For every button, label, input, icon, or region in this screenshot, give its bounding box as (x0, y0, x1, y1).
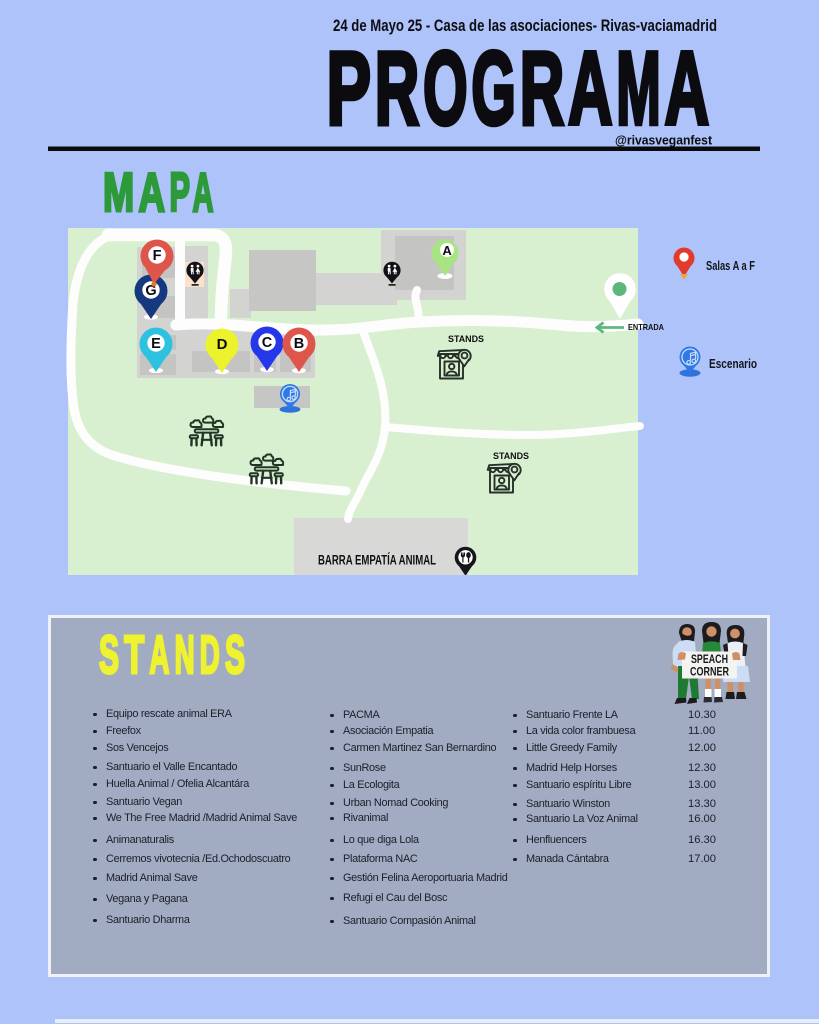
svg-text:A: A (568, 31, 613, 147)
svg-text:O: O (423, 31, 468, 147)
svg-text:D: D (217, 336, 228, 353)
svg-text:S: S (225, 628, 245, 683)
svg-text:C: C (262, 335, 273, 351)
svg-text:A: A (193, 161, 214, 223)
svg-text:BARRA EMPATÍA ANIMAL: BARRA EMPATÍA ANIMAL (318, 553, 436, 568)
svg-text:T: T (124, 628, 144, 683)
svg-text:P: P (170, 161, 191, 223)
svg-text:F: F (153, 248, 162, 264)
svg-text:S: S (99, 628, 119, 683)
svg-text:STANDS: STANDS (448, 334, 484, 345)
svg-text:A: A (665, 31, 710, 147)
svg-text:STANDS: STANDS (493, 451, 529, 462)
svg-text:Escenario: Escenario (709, 356, 757, 371)
svg-text:M: M (103, 161, 134, 223)
svg-text:R: R (520, 31, 565, 147)
svg-text:CORNER: CORNER (690, 667, 730, 679)
svg-text:A: A (149, 628, 169, 683)
svg-text:P: P (327, 31, 372, 147)
svg-text:M: M (616, 31, 661, 147)
svg-text:ENTRADA: ENTRADA (628, 322, 664, 332)
svg-text:E: E (151, 336, 161, 352)
svg-text:A: A (442, 243, 452, 258)
svg-text:Salas A a F: Salas A a F (706, 258, 755, 273)
svg-text:N: N (175, 628, 195, 683)
svg-text:B: B (294, 336, 304, 352)
svg-text:G: G (471, 31, 516, 147)
svg-text:D: D (200, 628, 220, 683)
svg-text:A: A (139, 161, 166, 223)
svg-text:R: R (375, 31, 420, 147)
svg-text:@rivasveganfest: @rivasveganfest (615, 133, 713, 148)
svg-text:SPEACH: SPEACH (691, 654, 728, 666)
